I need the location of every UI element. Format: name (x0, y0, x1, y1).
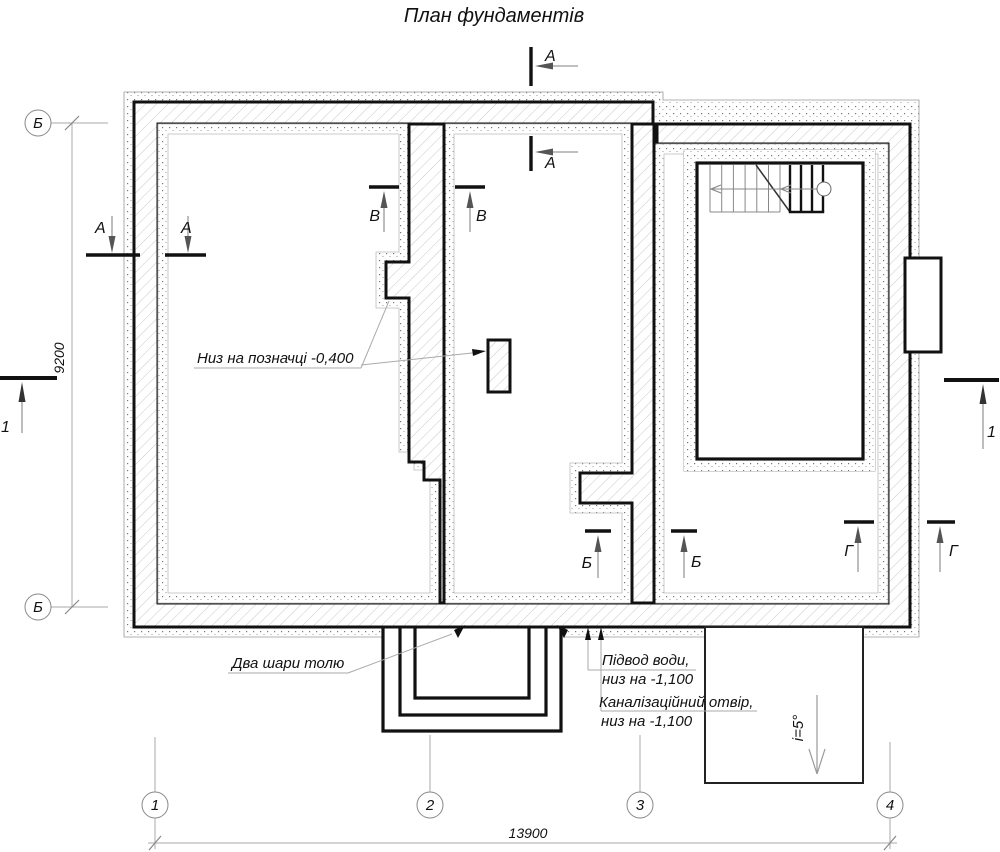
section-mark-g-left: Г (844, 522, 874, 572)
svg-text:Підвод води,: Підвод води, (602, 652, 689, 669)
section-mark-a-left-inner: А (165, 216, 206, 255)
section-mark-g-right: Г (927, 522, 959, 572)
foundation-plan-drawing: План фундаментів (0, 0, 1000, 852)
svg-text:Два шари толю: Два шари толю (230, 655, 344, 672)
svg-text:Б: Б (33, 599, 43, 616)
svg-text:Б: Б (33, 115, 43, 132)
svg-text:В: В (369, 208, 380, 225)
svg-text:4: 4 (886, 797, 894, 814)
svg-text:Б: Б (582, 555, 592, 572)
section-mark-a-top: А (531, 47, 578, 86)
plan-canvas: План фундаментів (0, 0, 1000, 852)
section-mark-b-left: Б (582, 531, 611, 578)
svg-text:А: А (180, 220, 192, 237)
svg-text:Каналізаційний отвір,: Каналізаційний отвір, (599, 694, 753, 711)
section-mark-1-left: 1 (0, 378, 57, 436)
svg-text:А: А (94, 220, 106, 237)
ramp-slope-label: і=5° (790, 715, 807, 741)
section-mark-v-left: В (369, 187, 399, 232)
section-mark-a-top-inner: А (531, 136, 578, 172)
svg-text:1: 1 (1, 419, 10, 436)
height-dimension-label: 9200 (51, 342, 67, 373)
svg-text:2: 2 (425, 797, 435, 814)
vertical-dimension: Б Б 9200 (25, 110, 108, 620)
svg-text:В: В (476, 208, 487, 225)
svg-text:Низ на позначці -0,400: Низ на позначці -0,400 (197, 350, 354, 367)
svg-text:А: А (544, 48, 556, 65)
svg-text:3: 3 (636, 797, 645, 814)
svg-text:1: 1 (151, 797, 159, 814)
svg-text:А: А (544, 155, 556, 172)
width-dimension-label: 13900 (509, 825, 548, 841)
section-mark-b-right: Б (671, 531, 701, 578)
interior-pier-footing (488, 340, 510, 392)
svg-text:Г: Г (949, 543, 959, 560)
svg-text:Г: Г (844, 543, 854, 560)
svg-text:низ на -1,100: низ на -1,100 (602, 671, 694, 688)
drawing-title: План фундаментів (404, 5, 584, 27)
svg-text:1: 1 (987, 424, 996, 441)
svg-text:Б: Б (691, 554, 701, 571)
section-mark-1-right: 1 (944, 380, 999, 449)
section-mark-v-right: В (455, 187, 487, 232)
divider-walls (386, 124, 654, 603)
svg-text:низ на -1,100: низ на -1,100 (601, 713, 693, 730)
right-wall-pier (905, 258, 941, 352)
entrance-porch (383, 625, 568, 731)
stair-start-circle (817, 182, 831, 196)
